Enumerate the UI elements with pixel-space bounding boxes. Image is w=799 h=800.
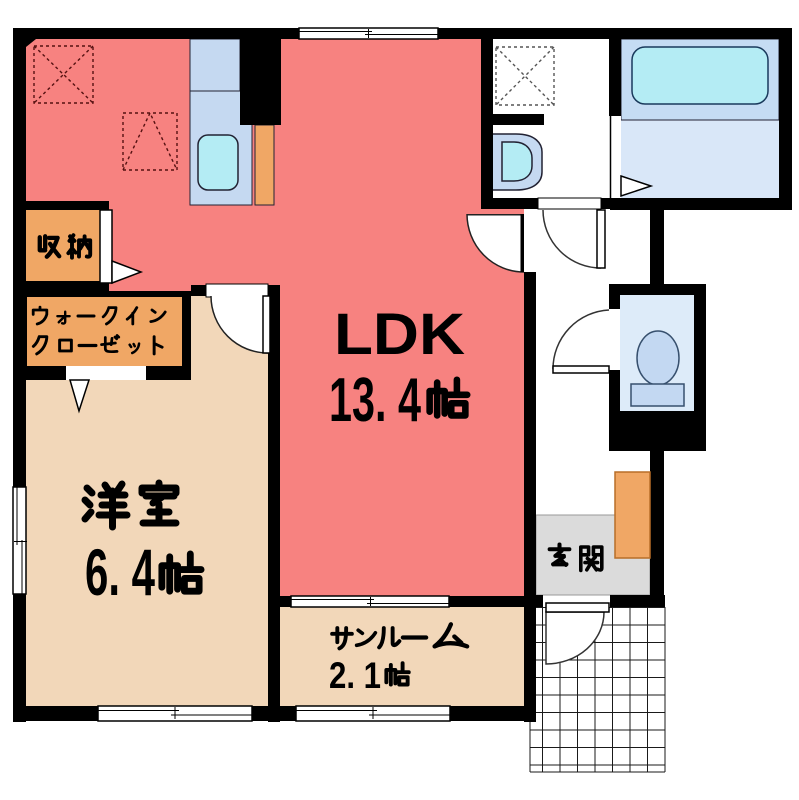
svg-text:2. 1: 2. 1 <box>329 655 381 696</box>
svg-text:6. 4: 6. 4 <box>85 535 155 609</box>
svg-text:13. 4: 13. 4 <box>329 366 421 435</box>
svg-text:LDK: LDK <box>334 302 465 367</box>
